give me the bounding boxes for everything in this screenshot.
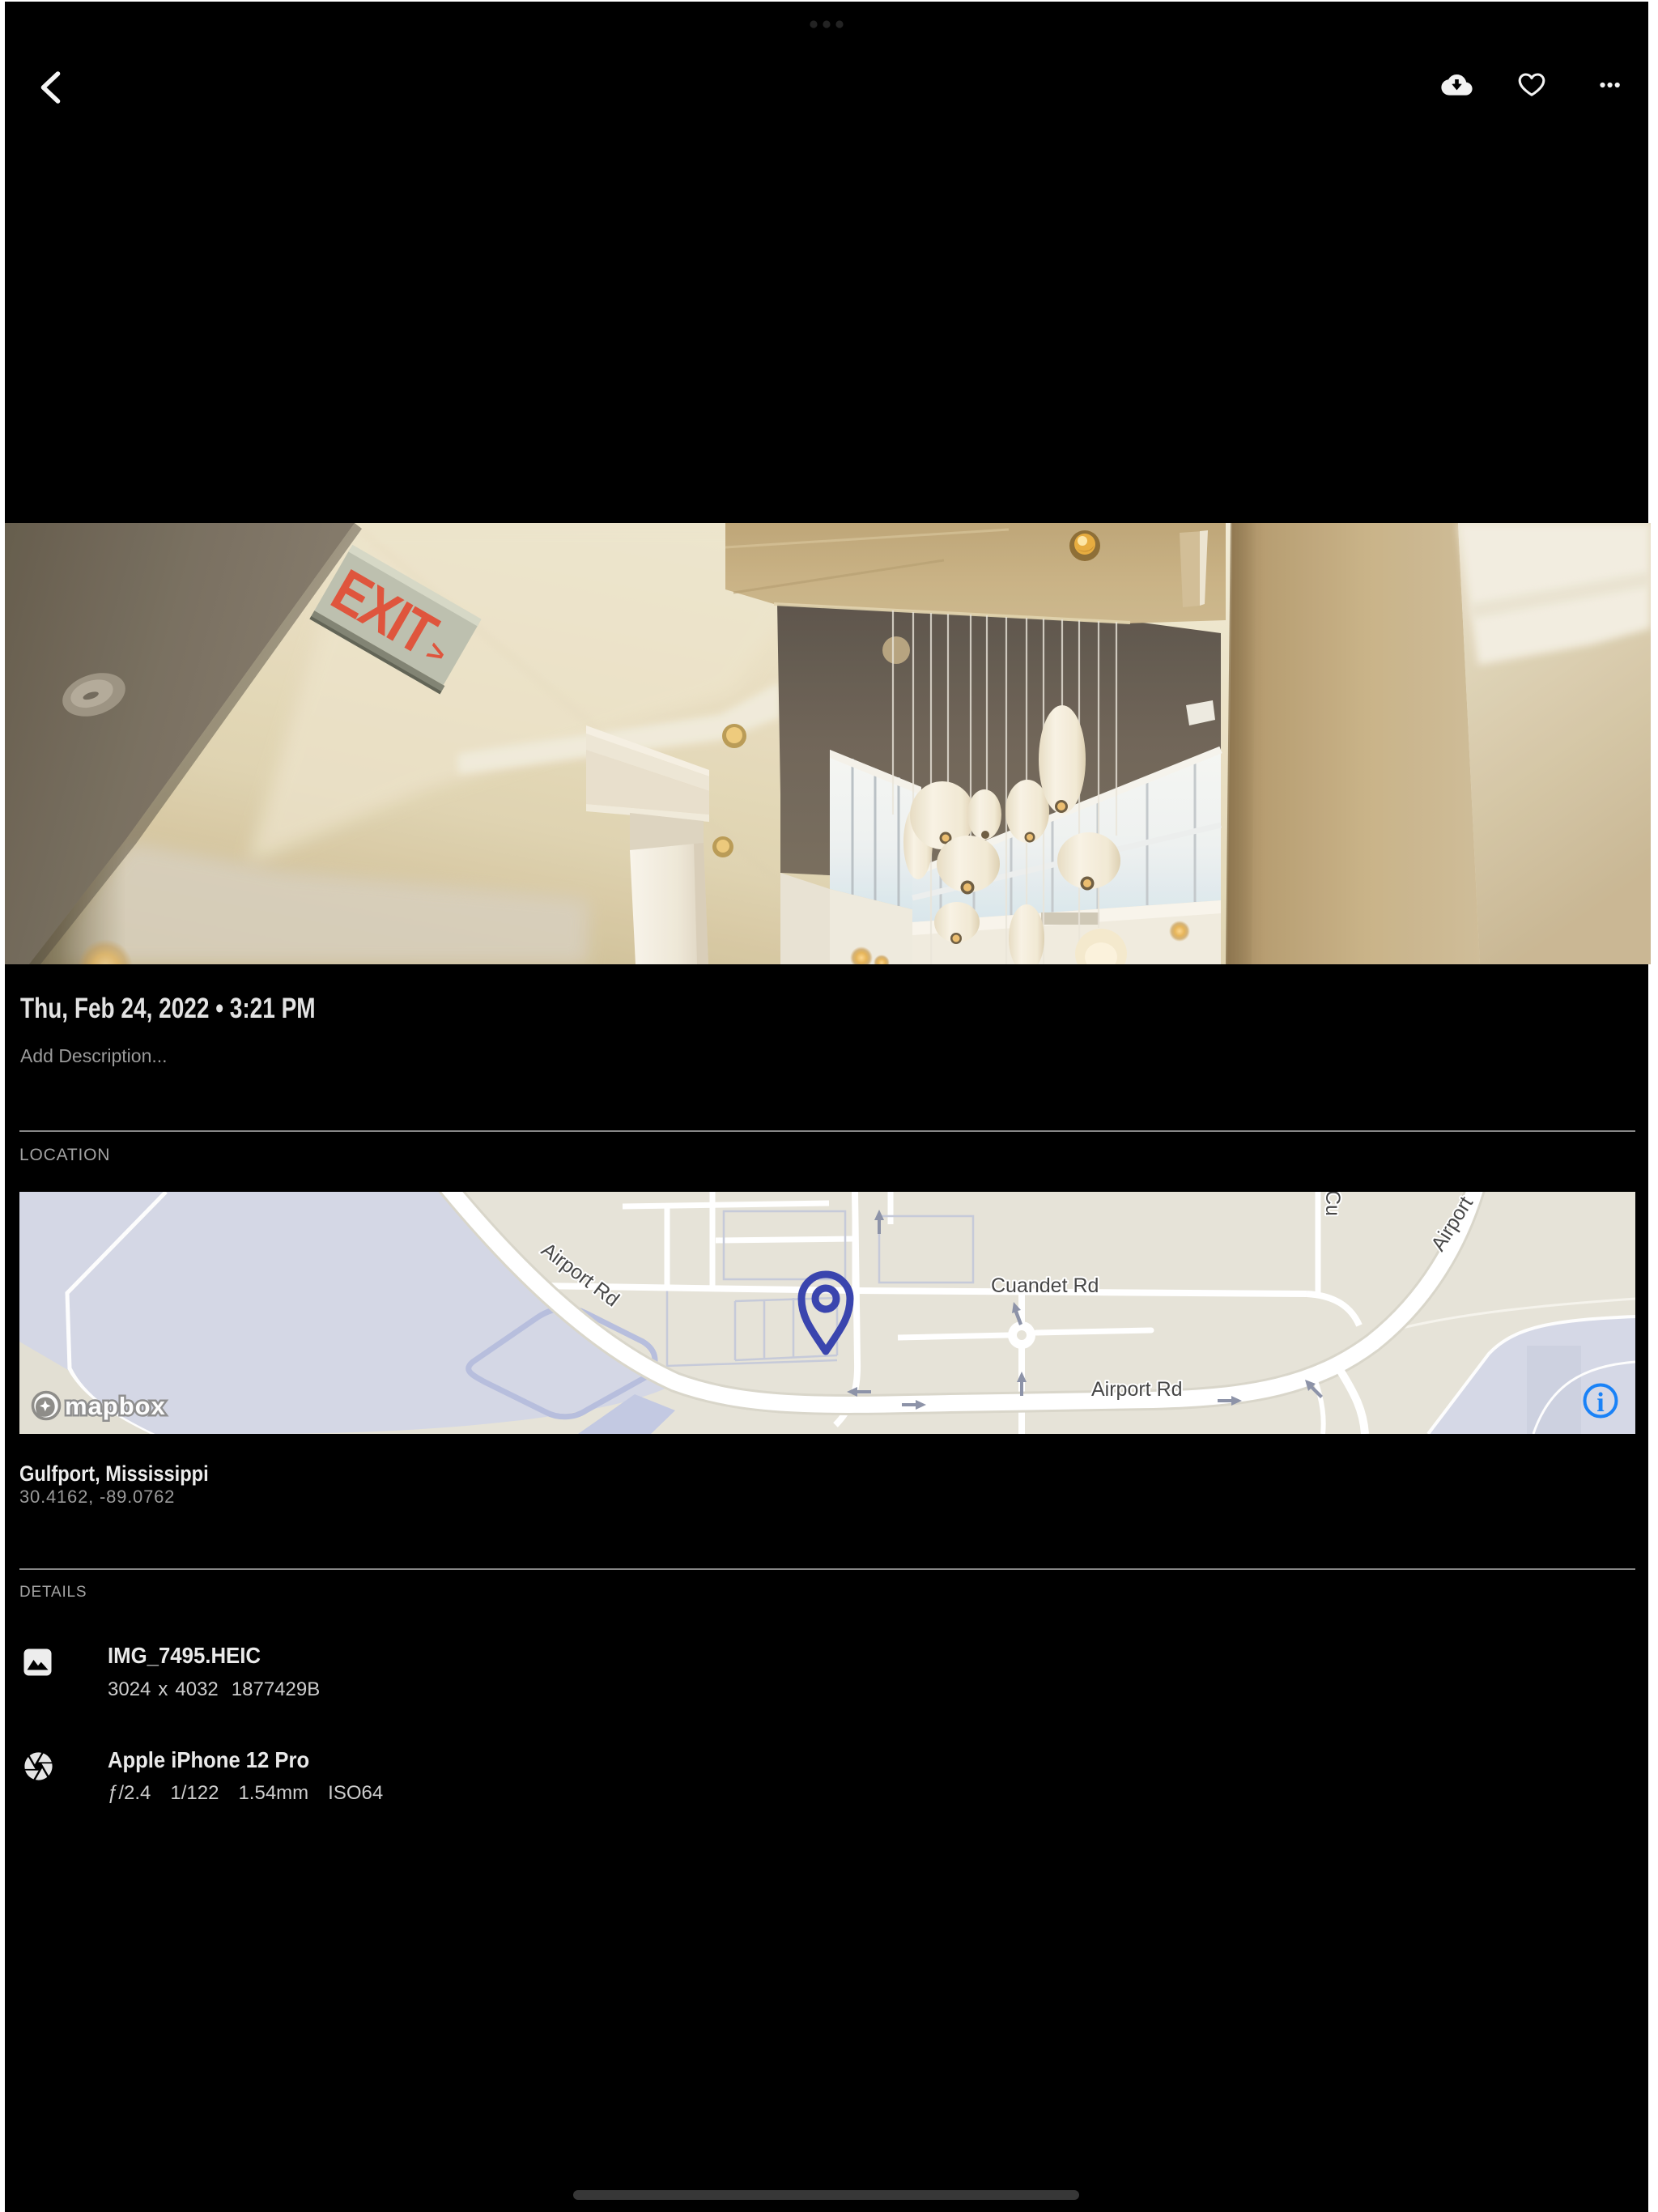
svg-text:Cu: Cu [1321,1192,1344,1216]
svg-text:Cuandet Rd: Cuandet Rd [991,1274,1099,1297]
svg-text:Airport Rd: Airport Rd [1091,1378,1183,1401]
svg-text:i: i [1596,1388,1604,1418]
svg-text:mapbox: mapbox [65,1392,166,1420]
